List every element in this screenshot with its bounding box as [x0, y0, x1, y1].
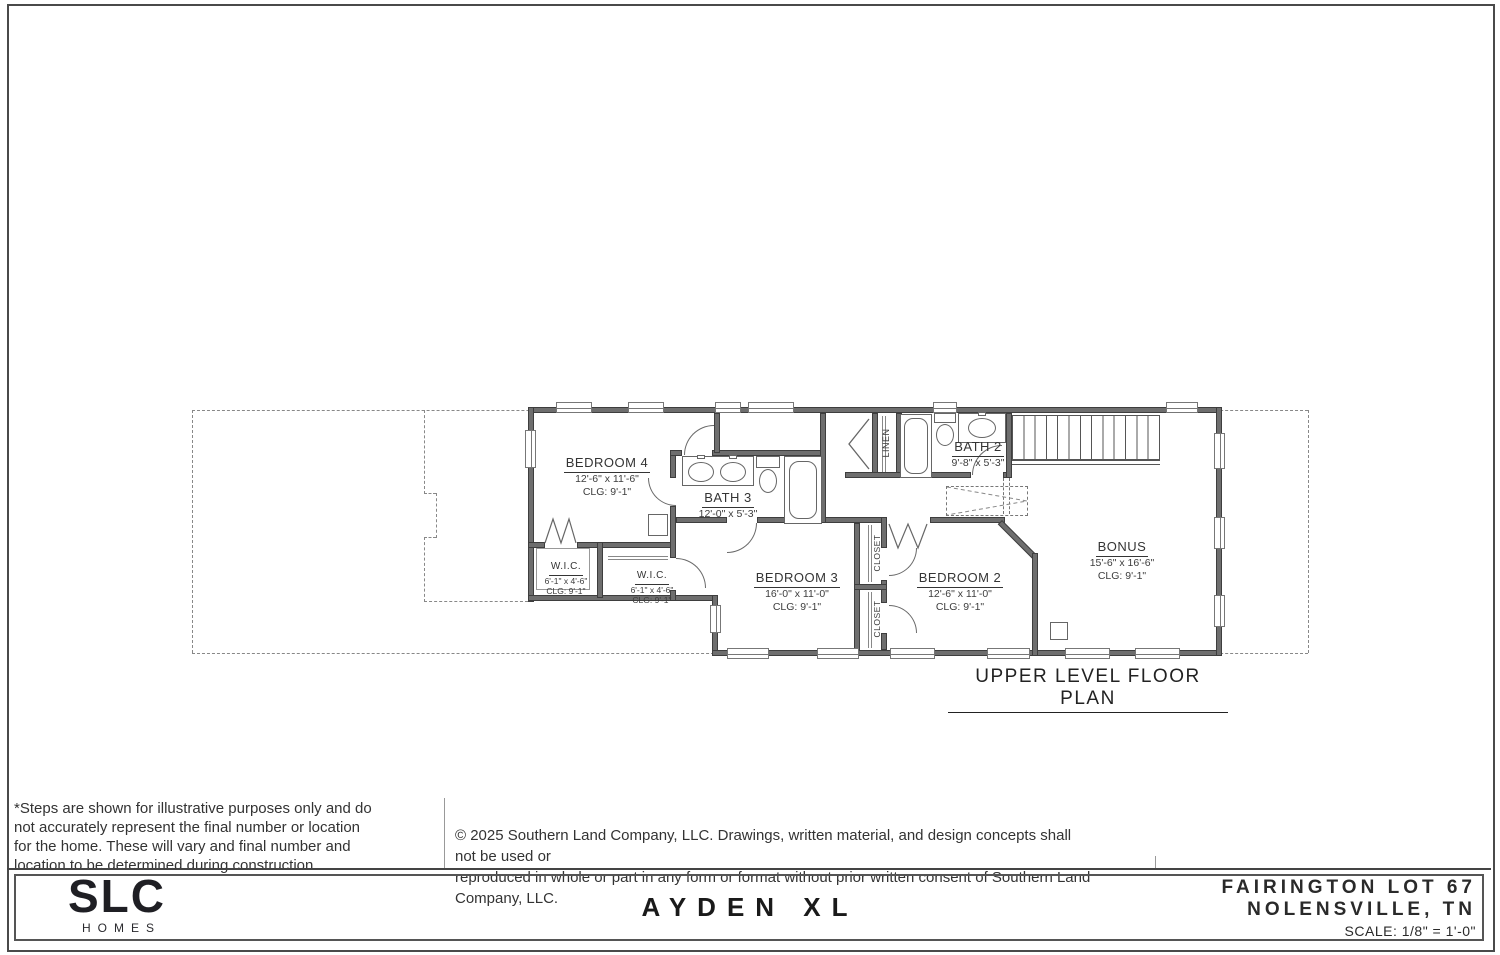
toilet-tank — [756, 456, 780, 468]
label-closet-lower: CLOSET — [872, 597, 882, 641]
window — [1166, 402, 1198, 413]
window — [933, 402, 957, 413]
window — [1214, 433, 1225, 469]
room-label-bath3: BATH 3 12'-0" x 5'-3" — [688, 488, 768, 521]
window — [1135, 648, 1180, 659]
sink — [688, 462, 714, 482]
staircase — [1012, 415, 1160, 460]
window — [1065, 648, 1110, 659]
window — [1214, 517, 1225, 549]
faucet — [978, 412, 986, 416]
window — [727, 648, 769, 659]
sink — [968, 418, 996, 438]
chase — [1050, 622, 1068, 640]
divider-tick — [444, 798, 445, 868]
drawing-sheet: BEDROOM 4 12'-6" x 11'-6" CLG: 9'-1" BAT… — [0, 0, 1500, 955]
window — [987, 648, 1030, 659]
window — [817, 648, 859, 659]
room-label-bedroom4: BEDROOM 4 12'-6" x 11'-6" CLG: 9'-1" — [547, 453, 667, 500]
room-label-wic2: W.I.C. 6'-1" x 4'-6" CLG: 9'-1" — [617, 564, 687, 606]
stair-railing — [1012, 460, 1160, 465]
room-label-bedroom3: BEDROOM 3 16'-0" x 11'-0" CLG: 9'-1" — [737, 568, 857, 615]
room-label-wic1: W.I.C. 6'-1" x 4'-6" CLG: 9'-1" — [531, 555, 601, 597]
bathtub-inner — [789, 461, 817, 519]
double-door-chevron-icon — [887, 521, 929, 551]
bifold-door-icon — [543, 516, 577, 544]
window — [1214, 595, 1225, 627]
label-linen: LINEN — [881, 425, 891, 461]
faucet — [729, 455, 737, 459]
window — [525, 430, 536, 468]
drawing-scale: SCALE: 1/8" = 1'-0" — [1221, 923, 1476, 939]
window — [748, 402, 794, 413]
window — [715, 402, 741, 413]
window — [710, 605, 721, 633]
double-door-chevron-icon — [845, 416, 871, 472]
room-label-bedroom2: BEDROOM 2 12'-6" x 11'-0" CLG: 9'-1" — [900, 568, 1020, 615]
attic-access-x — [946, 486, 1028, 516]
faucet — [697, 455, 705, 459]
toilet-tank — [934, 413, 956, 423]
bathtub-inner — [904, 418, 928, 474]
project-info: FAIRINGTON LOT 67 NOLENSVILLE, TN SCALE:… — [1221, 877, 1476, 939]
steps-disclaimer: *Steps are shown for illustrative purpos… — [14, 799, 434, 875]
window — [556, 402, 592, 413]
window — [890, 648, 935, 659]
label-closet-upper: CLOSET — [872, 531, 882, 575]
project-lot: FAIRINGTON LOT 67 — [1221, 877, 1476, 899]
project-city: NOLENSVILLE, TN — [1221, 899, 1476, 921]
room-label-bath2: BATH 2 9'-8" x 5'-3" — [938, 437, 1018, 470]
room-label-bonus: BONUS 15'-6" x 16'-6" CLG: 9'-1" — [1062, 537, 1182, 584]
wic-shelf — [608, 556, 668, 560]
divider-tick — [1155, 856, 1156, 868]
footer-divider — [7, 868, 1491, 870]
logo-subtext: HOMES — [82, 921, 166, 935]
chase — [648, 514, 668, 536]
sink — [720, 462, 746, 482]
window — [628, 402, 664, 413]
plan-title: UPPER LEVEL FLOOR PLAN — [948, 666, 1228, 713]
